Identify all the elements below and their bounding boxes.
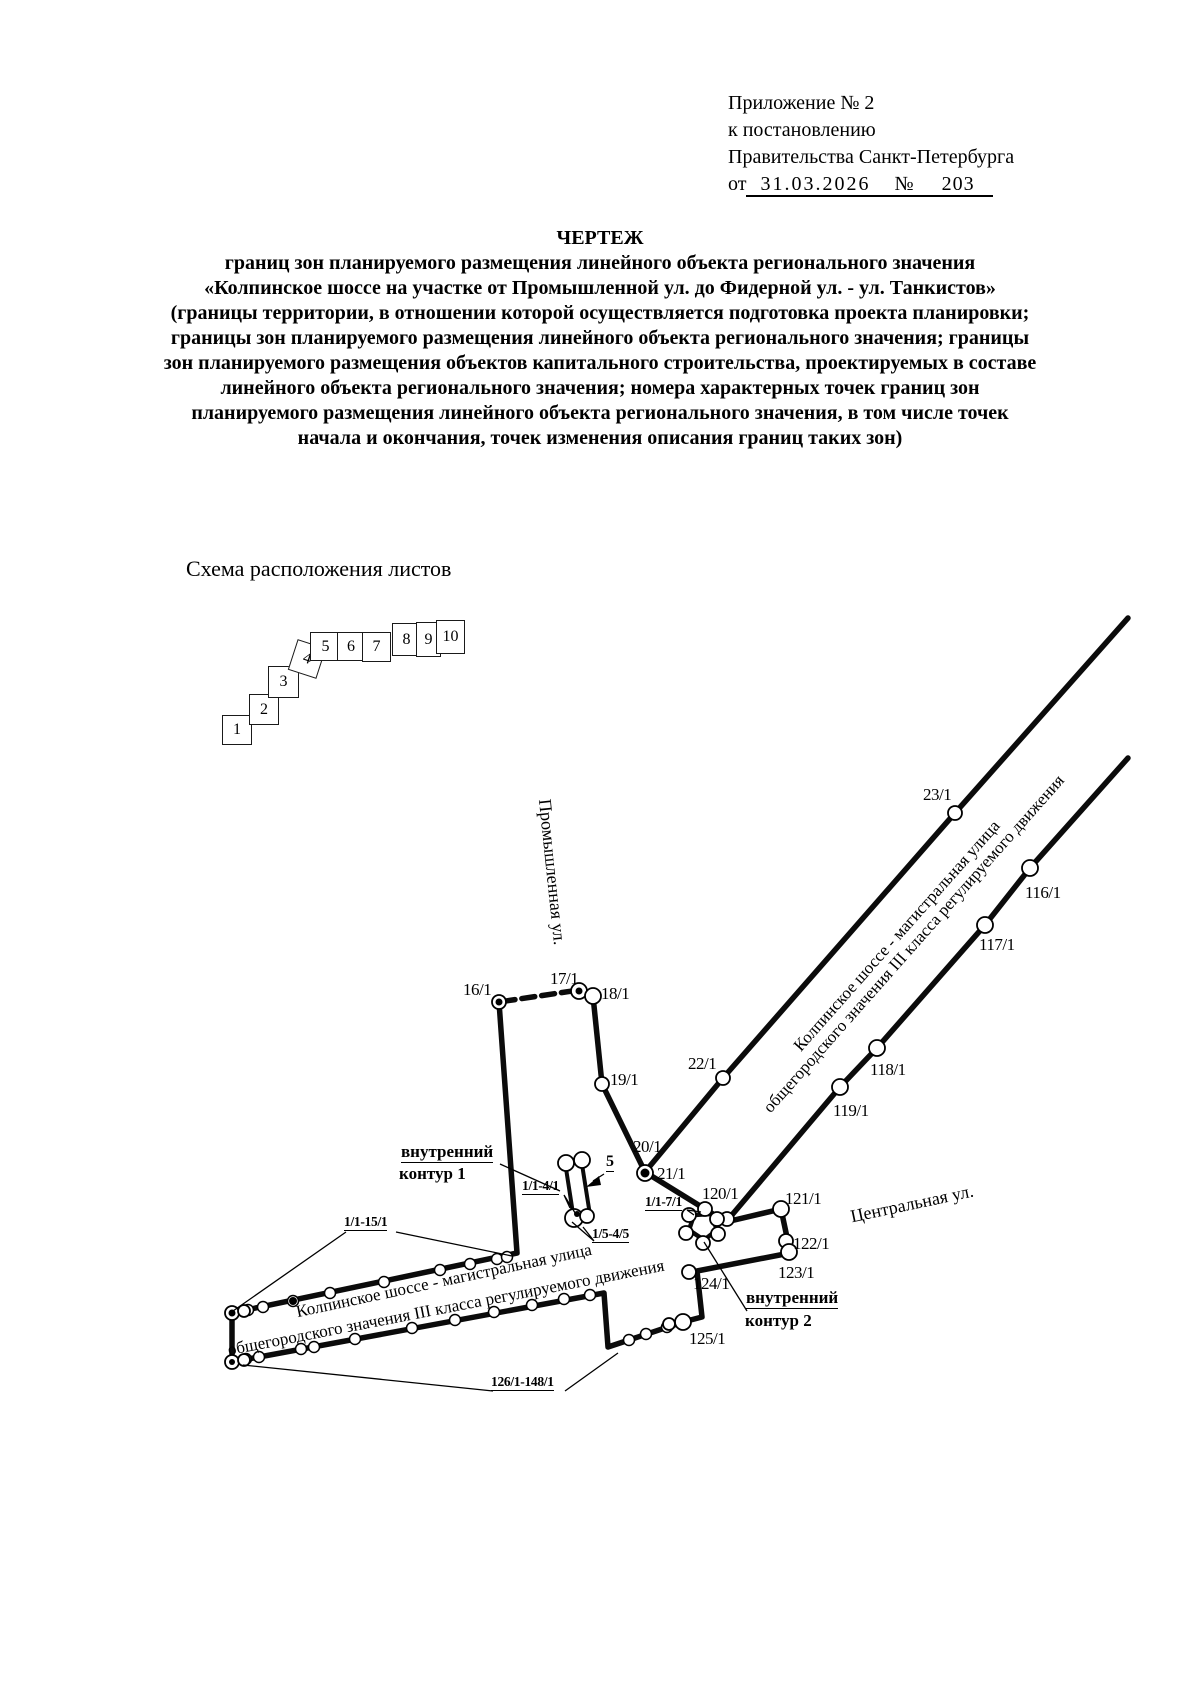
plan-drawing (0, 0, 1200, 1702)
point-label-19-1: 19/1 (610, 1070, 638, 1090)
point-label-119-1: 119/1 (833, 1101, 869, 1121)
range-label-1-1-15-1: 1/1-15/1 (344, 1214, 387, 1231)
point-label-23-1: 23/1 (923, 785, 951, 805)
inner-contour-1-label-line2: контур 1 (399, 1164, 466, 1184)
point-label-16-1: 16/1 (463, 980, 491, 1000)
point-label-120-1: 120/1 (702, 1184, 738, 1204)
inner-contour-2-label-line1: внутренний (746, 1288, 838, 1309)
inner-contour-2-label-line2: контур 2 (745, 1311, 812, 1331)
label-sheet-5: 5 (606, 1153, 614, 1172)
range-label-1-1-7-1: 1/1-7/1 (645, 1194, 682, 1211)
point-label-118-1: 118/1 (870, 1060, 906, 1080)
point-label-117-1: 117/1 (979, 935, 1015, 955)
leader-126-1-148-1 (243, 1353, 618, 1391)
document-page: Приложение № 2 к постановлению Правитель… (0, 0, 1200, 1702)
point-label-22-1: 22/1 (688, 1054, 716, 1074)
point-label-116-1: 116/1 (1025, 883, 1061, 903)
range-label-126-1-148-1: 126/1-148/1 (491, 1374, 554, 1391)
point-label-122-1: 122/1 (793, 1234, 829, 1254)
point-label-125-1: 125/1 (689, 1329, 725, 1349)
point-label-20-1: 20/1 (633, 1137, 661, 1157)
point-label-124-1: 124/1 (693, 1274, 729, 1294)
inner-contour-2 (679, 1202, 725, 1250)
point-label-121-1: 121/1 (785, 1189, 821, 1209)
leader-1-5-4-5 (572, 1222, 594, 1241)
point-label-17-1: 17/1 (550, 969, 578, 989)
inner-contour-1-label-line1: внутренний (401, 1142, 493, 1163)
kolpinskoye-east-line (726, 758, 1128, 1222)
point-label-21-1: 21/1 (657, 1164, 685, 1184)
range-label-1-1-4-1: 1/1-4/1 (522, 1178, 559, 1195)
range-label-1-5-4-5: 1/5-4/5 (592, 1226, 629, 1243)
point-label-18-1: 18/1 (601, 984, 629, 1004)
point-label-123-1: 123/1 (778, 1263, 814, 1283)
sheet5-arrowhead (586, 1176, 601, 1187)
